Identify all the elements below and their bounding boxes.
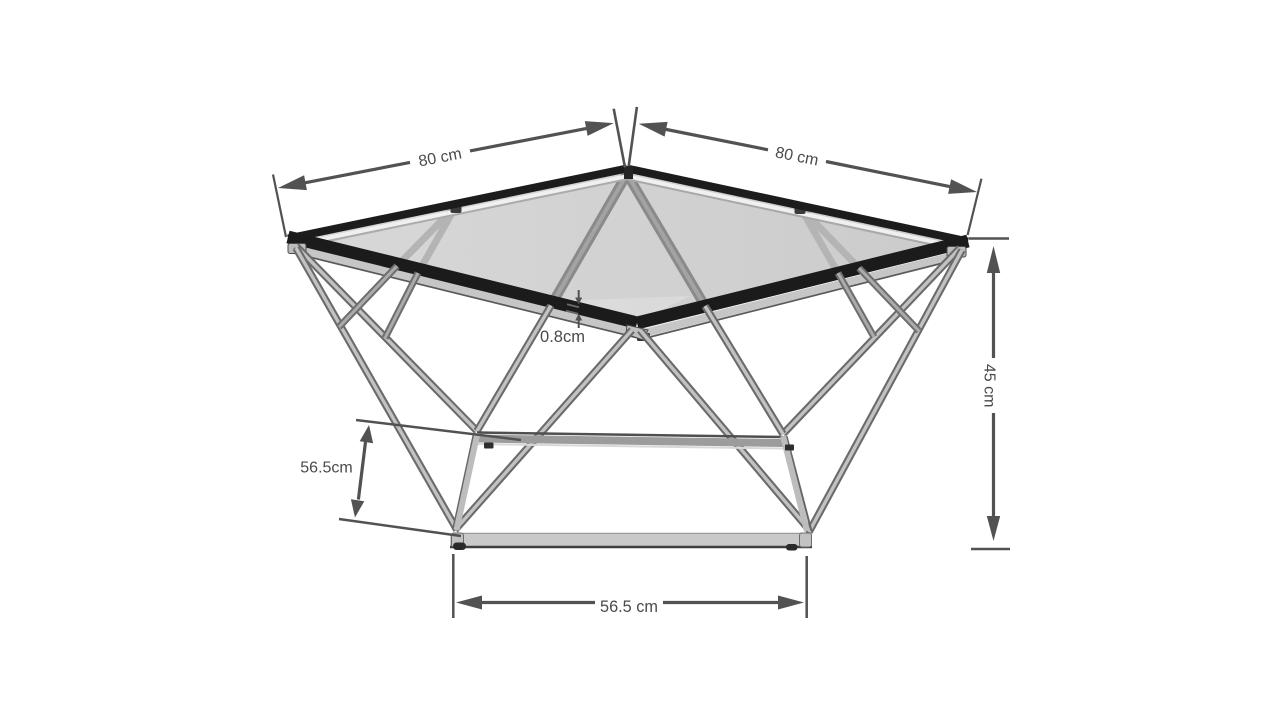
svg-text:56.5 cm: 56.5 cm: [600, 598, 658, 616]
svg-text:45 cm: 45 cm: [981, 364, 998, 408]
svg-text:56.5cm: 56.5cm: [300, 460, 352, 477]
svg-text:0.8cm: 0.8cm: [540, 328, 585, 346]
